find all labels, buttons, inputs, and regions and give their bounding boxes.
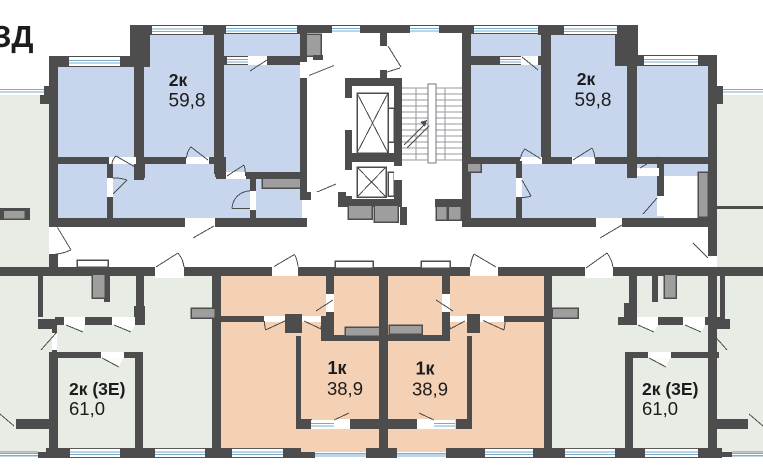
svg-text:61,0: 61,0 — [69, 398, 105, 419]
svg-text:61,0: 61,0 — [642, 398, 678, 419]
svg-text:1к: 1к — [327, 358, 347, 378]
svg-text:2к: 2к — [577, 69, 596, 89]
svg-text:ЗД: ЗД — [0, 19, 34, 54]
svg-text:59,8: 59,8 — [575, 90, 612, 111]
svg-text:2к: 2к — [169, 70, 188, 90]
svg-text:2к (3Е): 2к (3Е) — [69, 379, 125, 399]
svg-text:2к (3Е): 2к (3Е) — [642, 379, 698, 399]
svg-text:59,8: 59,8 — [169, 91, 206, 112]
svg-text:38,9: 38,9 — [412, 379, 448, 400]
svg-text:38,9: 38,9 — [327, 378, 363, 399]
svg-text:1к: 1к — [415, 359, 435, 379]
